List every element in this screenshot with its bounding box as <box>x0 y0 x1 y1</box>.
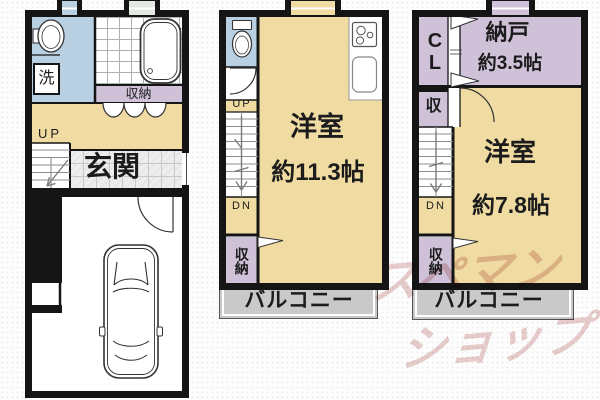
f3-balcony-label: バルコニー <box>414 290 564 312</box>
f3-window-bay <box>486 0 535 16</box>
f1-entrance-label: 玄関 <box>74 152 150 181</box>
f1-front-door <box>182 151 189 187</box>
f2-balcony-label: バルコニー <box>221 290 377 312</box>
f2-up-label: UP <box>226 99 258 111</box>
f2-room-size-label: 約11.3帖 <box>248 160 388 185</box>
f1-window-bay-2 <box>124 0 160 16</box>
f2-storage-label: 収納 <box>234 240 249 282</box>
f3-storeroom-size-label: 約3.5帖 <box>458 54 562 74</box>
f1-storage-label: 収納 <box>95 85 182 103</box>
f3-storage-small-label: 収 <box>419 99 448 116</box>
f1-wash-box: 洗 <box>33 63 60 95</box>
f3-room-label: 洋室 <box>453 139 567 166</box>
f1-up-label: UP <box>32 127 68 141</box>
f2-window-bay <box>285 0 341 16</box>
f3-room-size-label: 約7.8帖 <box>450 193 572 217</box>
f3-storage-label: 収納 <box>428 240 443 282</box>
f2-dn-label: DN <box>226 201 258 213</box>
f1-wash-label: 洗 <box>38 70 54 87</box>
f1-window-bay-1 <box>57 0 82 16</box>
f2-room-label: 洋室 <box>252 113 382 141</box>
f3-dn-label: DN <box>419 201 453 213</box>
floor-plan-image: 洗 収納 UP 玄関 UP DN 洋室 約11.3帖 収納 バルコニー CL 納… <box>0 0 600 400</box>
f3-cl-label: CL <box>424 23 445 81</box>
f3-storeroom-label: 納戸 <box>460 21 555 44</box>
